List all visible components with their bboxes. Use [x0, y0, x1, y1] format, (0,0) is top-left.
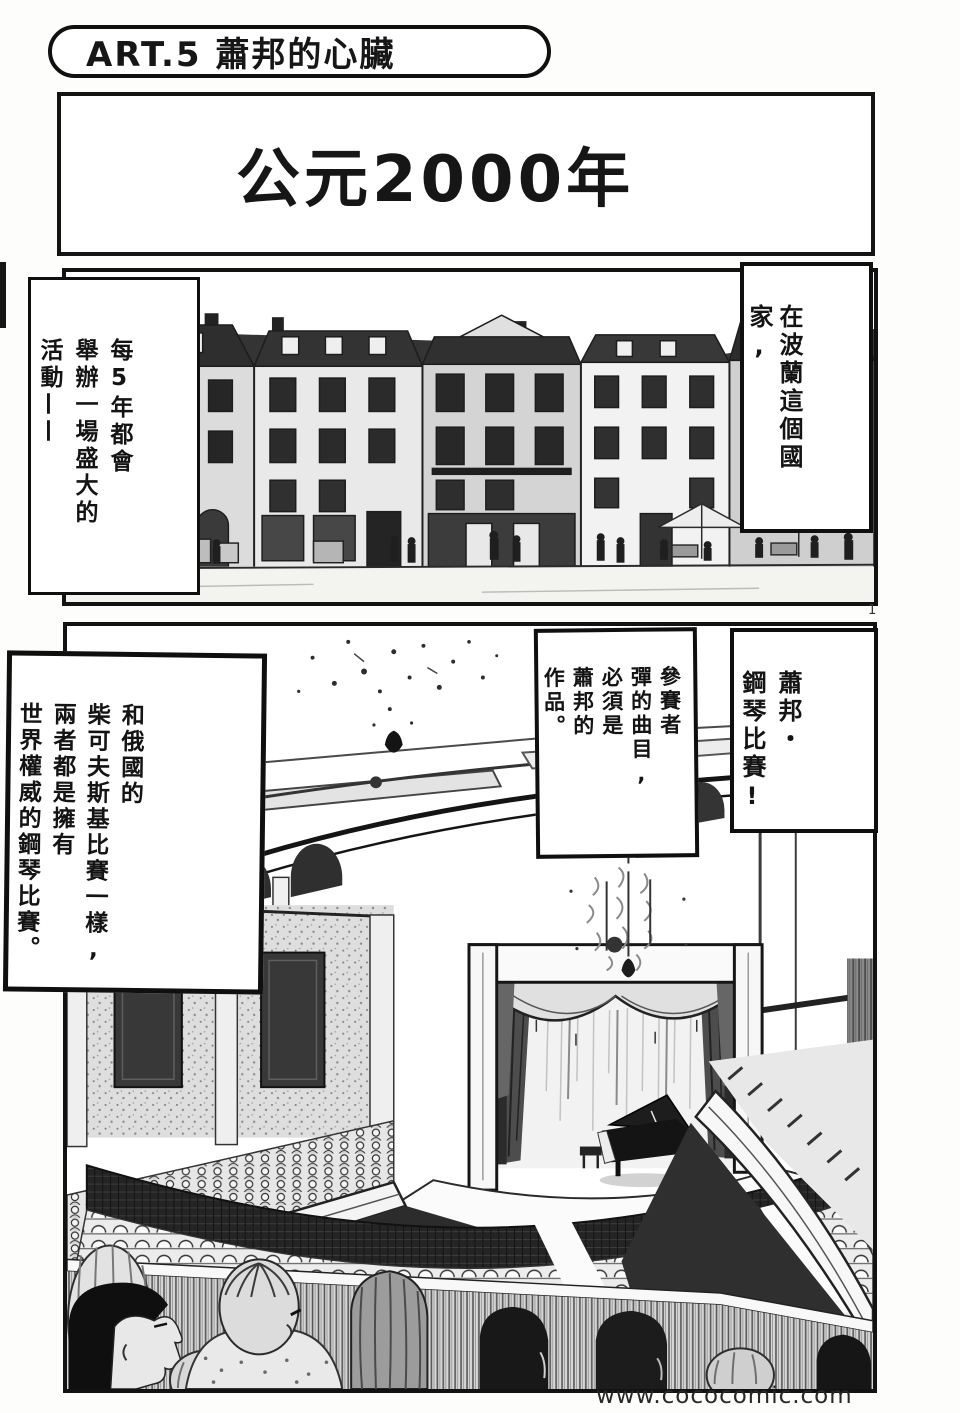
watermark: www.cococomic.com — [596, 1383, 853, 1409]
narration-box-tchaikovsky: 和俄國的 柴可夫斯基比賽一樣, 兩者都是擁有 世界權威的鋼琴比賽。 — [3, 650, 267, 994]
narration-text: 和俄國的 柴可夫斯基比賽一樣, 兩者都是擁有 世界權威的鋼琴比賽。 — [8, 701, 147, 966]
audience-longhair-woman — [351, 1271, 427, 1389]
manga-page: ART.5 蕭邦的心臟 公元2000年 — [0, 0, 960, 1413]
scan-edge-mark — [0, 262, 6, 328]
audience-dark-head-1 — [480, 1307, 548, 1389]
narration-text: 在波蘭這個國家, — [744, 304, 804, 529]
narration-box-every-5-years: 每5年都會 舉辦一場盛大的 活動—— — [28, 277, 200, 595]
narration-box-chopin-competition: 蕭邦・ 鋼琴比賽! — [730, 628, 878, 833]
chapter-title: ART.5 蕭邦的心臟 — [86, 27, 395, 76]
chapter-header: ART.5 蕭邦的心臟 — [48, 25, 551, 78]
year-caption-box: 公元2000年 — [57, 92, 875, 256]
narration-text: 參賽者 彈的曲目, 必須是 蕭邦的 作品。 — [538, 665, 684, 790]
narration-box-contestants: 參賽者 彈的曲目, 必須是 蕭邦的 作品。 — [534, 627, 699, 859]
page-number: 1 — [868, 603, 876, 618]
narration-text: 每5年都會 舉辦一場盛大的 活動—— — [31, 338, 136, 527]
audience-dark-head-2 — [596, 1311, 667, 1389]
year-caption-text: 公元2000年 — [236, 128, 634, 220]
narration-text: 蕭邦・ 鋼琴比賽! — [734, 670, 806, 814]
narration-box-poland: 在波蘭這個國家, — [740, 262, 873, 533]
